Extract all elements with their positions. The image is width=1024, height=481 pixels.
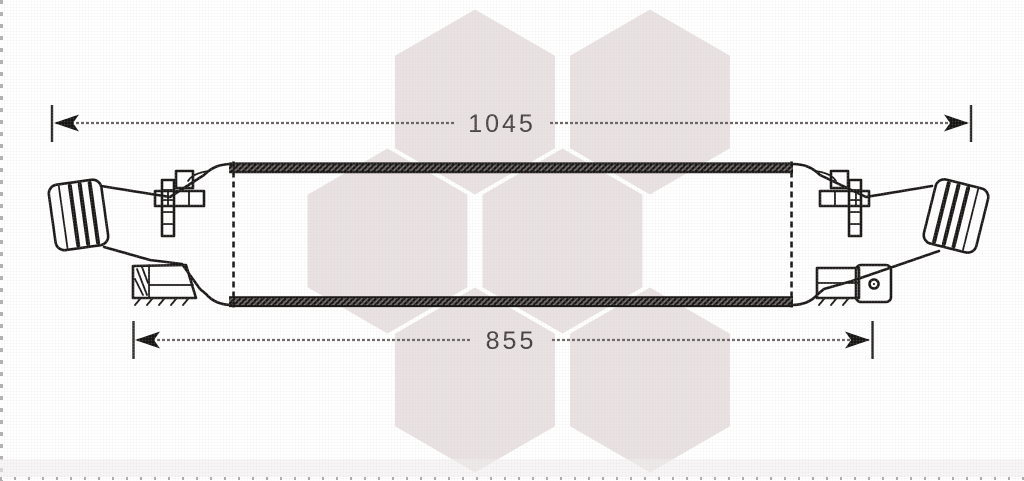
dimension-arrow-left — [135, 332, 160, 349]
right-bracket-ground-hatch — [819, 299, 848, 305]
right-end-tank-and-outlet — [792, 164, 990, 305]
overall-width-label: 1045 — [468, 110, 536, 138]
right-tank-bottom-contour — [792, 251, 939, 305]
right-hose-ribbed-end — [922, 177, 990, 254]
overall-width-dimension: 1045 — [52, 105, 971, 142]
core-width-label: 855 — [486, 327, 537, 355]
scan-artifact-band — [0, 459, 1024, 477]
core-width-dimension: 855 — [134, 321, 873, 359]
right-top-mounting-bracket — [815, 171, 869, 236]
left-tank-bottom-contour — [104, 247, 232, 305]
dimension-arrow-left — [54, 115, 79, 132]
left-top-mounting-bracket — [155, 171, 209, 236]
intercooler-technical-drawing: 1045 855 — [0, 0, 1024, 481]
left-bracket-ground-hatch — [135, 299, 188, 305]
catalog-drawing-page: 1045 855 — [0, 0, 1024, 481]
hexagon-honeycomb-watermark — [0, 10, 1024, 478]
left-bottom-mounting-bracket — [133, 265, 196, 305]
left-hose-ribbed-end — [48, 179, 110, 252]
core-top-edge — [229, 163, 793, 173]
left-end-tank-and-inlet — [48, 164, 232, 305]
core-bottom-edge — [229, 297, 793, 307]
